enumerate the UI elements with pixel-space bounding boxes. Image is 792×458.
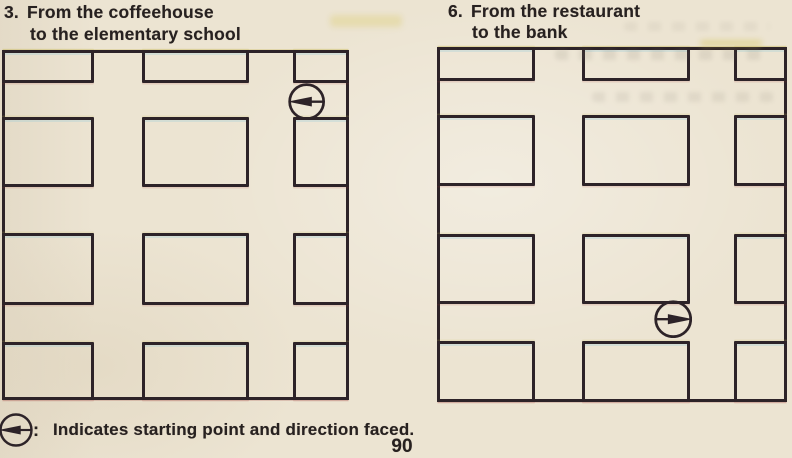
street-grid-map-problem-3 xyxy=(2,50,349,400)
city-block xyxy=(142,117,249,187)
city-block xyxy=(582,115,690,186)
city-block xyxy=(582,47,690,81)
legend-text: Indicates starting point and direction f… xyxy=(53,420,414,440)
city-block xyxy=(582,341,690,402)
legend-start-marker-icon xyxy=(0,413,33,447)
city-block xyxy=(2,50,94,83)
city-block xyxy=(2,233,94,305)
city-block xyxy=(437,47,535,81)
circle-arrow-right-icon xyxy=(654,300,692,338)
problem-3-number: 3. xyxy=(4,2,19,22)
problem-6-title: 6. From the restaurant xyxy=(448,1,640,21)
problem-3-title: 3. From the coffeehouse xyxy=(4,2,214,22)
city-block xyxy=(582,234,690,304)
city-block xyxy=(2,342,94,400)
city-block xyxy=(2,117,94,187)
city-block xyxy=(142,233,249,305)
start-marker-facing-right xyxy=(654,300,692,338)
city-block xyxy=(293,50,349,83)
city-block xyxy=(734,234,787,304)
scan-smudge xyxy=(700,40,762,46)
city-block xyxy=(293,342,349,400)
city-block xyxy=(142,342,249,400)
city-block xyxy=(293,233,349,305)
circle-arrow-left-icon xyxy=(0,413,33,447)
circle-arrow-left-icon xyxy=(288,83,325,120)
scan-smudge xyxy=(330,15,402,27)
problem-6-title-line1: From the restaurant xyxy=(471,1,640,21)
legend-separator: : xyxy=(33,420,39,441)
city-block xyxy=(734,47,787,81)
street-grid-map-problem-6 xyxy=(437,47,787,402)
city-block xyxy=(437,341,535,402)
page-number: 90 xyxy=(386,436,418,458)
textbook-page: 3. From the coffeehouse to the elementar… xyxy=(0,0,792,458)
problem-6-number: 6. xyxy=(448,1,463,21)
city-block xyxy=(437,234,535,304)
city-block xyxy=(437,115,535,186)
city-block xyxy=(734,115,787,186)
problem-3-title-line2: to the elementary school xyxy=(30,24,241,44)
city-block xyxy=(734,341,787,402)
start-marker-facing-left xyxy=(288,83,325,120)
city-block xyxy=(142,50,249,83)
scan-bleed-artifact xyxy=(624,22,770,31)
problem-3-title-line1: From the coffeehouse xyxy=(27,2,214,22)
city-block xyxy=(293,117,349,187)
problem-6-title-line2: to the bank xyxy=(472,22,568,42)
